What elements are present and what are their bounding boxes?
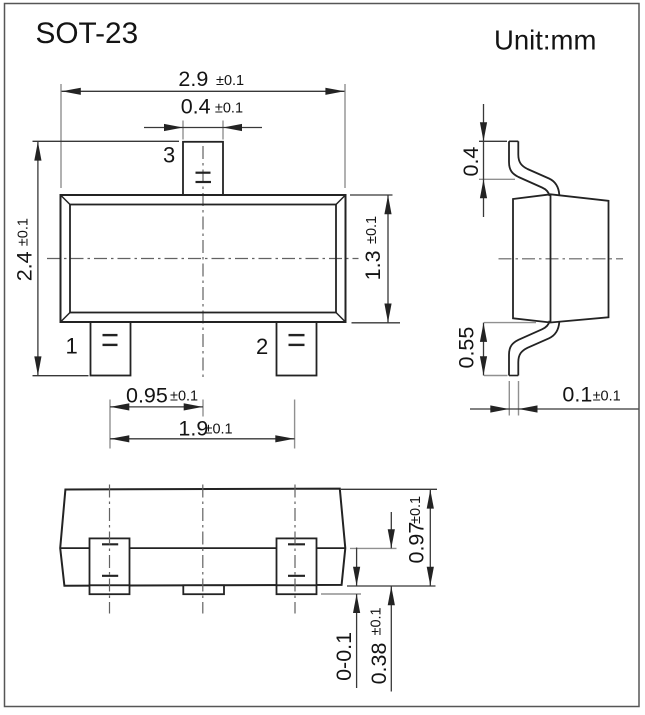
svg-text:±0.1: ±0.1 xyxy=(215,101,243,117)
svg-text:0-0.1: 0-0.1 xyxy=(332,632,356,681)
svg-text:3: 3 xyxy=(163,143,175,168)
svg-text:0.55: 0.55 xyxy=(455,327,479,369)
svg-text:0.4: 0.4 xyxy=(459,147,483,177)
svg-text:±0.1: ±0.1 xyxy=(408,496,424,524)
svg-text:±0.1: ±0.1 xyxy=(15,218,31,246)
svg-text:±0.1: ±0.1 xyxy=(364,216,380,244)
svg-text:0.38: 0.38 xyxy=(367,643,391,685)
svg-text:0.1: 0.1 xyxy=(562,383,592,407)
svg-text:2.9: 2.9 xyxy=(178,67,208,91)
svg-text:2.4: 2.4 xyxy=(13,251,37,281)
svg-text:1: 1 xyxy=(66,334,78,359)
svg-text:SOT-23: SOT-23 xyxy=(36,17,139,50)
svg-text:±0.1: ±0.1 xyxy=(170,389,198,405)
svg-text:0.95: 0.95 xyxy=(126,384,168,408)
svg-text:1.3: 1.3 xyxy=(361,250,385,280)
svg-text:±0.1: ±0.1 xyxy=(205,422,233,438)
svg-text:0.4: 0.4 xyxy=(181,95,211,119)
svg-text:±0.1: ±0.1 xyxy=(593,389,621,405)
svg-text:0.97: 0.97 xyxy=(404,522,428,564)
svg-text:±0.1: ±0.1 xyxy=(369,607,385,635)
svg-text:2: 2 xyxy=(256,334,268,359)
svg-text:±0.1: ±0.1 xyxy=(216,73,244,89)
svg-text:Unit:mm: Unit:mm xyxy=(494,24,596,55)
